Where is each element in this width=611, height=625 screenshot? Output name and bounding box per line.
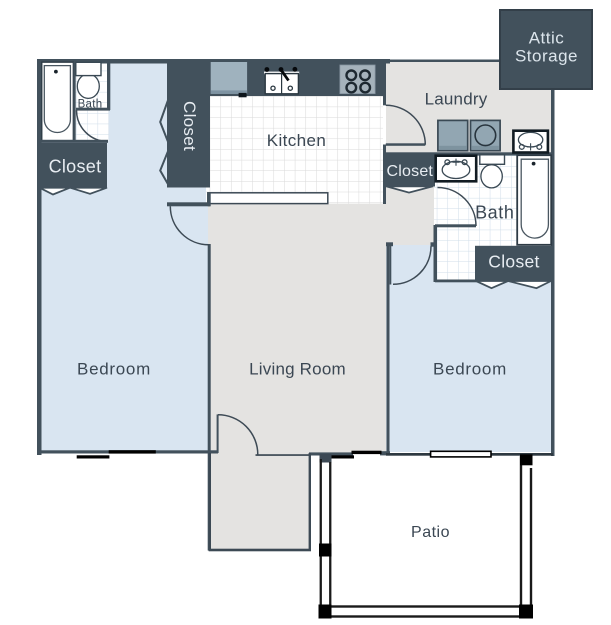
svg-text:Bath: Bath [475, 202, 514, 222]
svg-text:Closet: Closet [49, 157, 102, 177]
svg-text:Storage: Storage [515, 47, 578, 66]
svg-text:Bedroom: Bedroom [433, 360, 507, 379]
svg-text:Bedroom: Bedroom [77, 360, 151, 379]
svg-text:Closet: Closet [387, 163, 434, 180]
svg-text:Patio: Patio [411, 524, 450, 541]
svg-text:Laundry: Laundry [425, 90, 488, 109]
svg-text:Living Room: Living Room [249, 360, 346, 379]
svg-text:Attic: Attic [529, 29, 565, 48]
svg-text:Closet: Closet [488, 252, 539, 272]
svg-text:Closet: Closet [180, 101, 199, 151]
svg-text:Kitchen: Kitchen [267, 131, 327, 150]
